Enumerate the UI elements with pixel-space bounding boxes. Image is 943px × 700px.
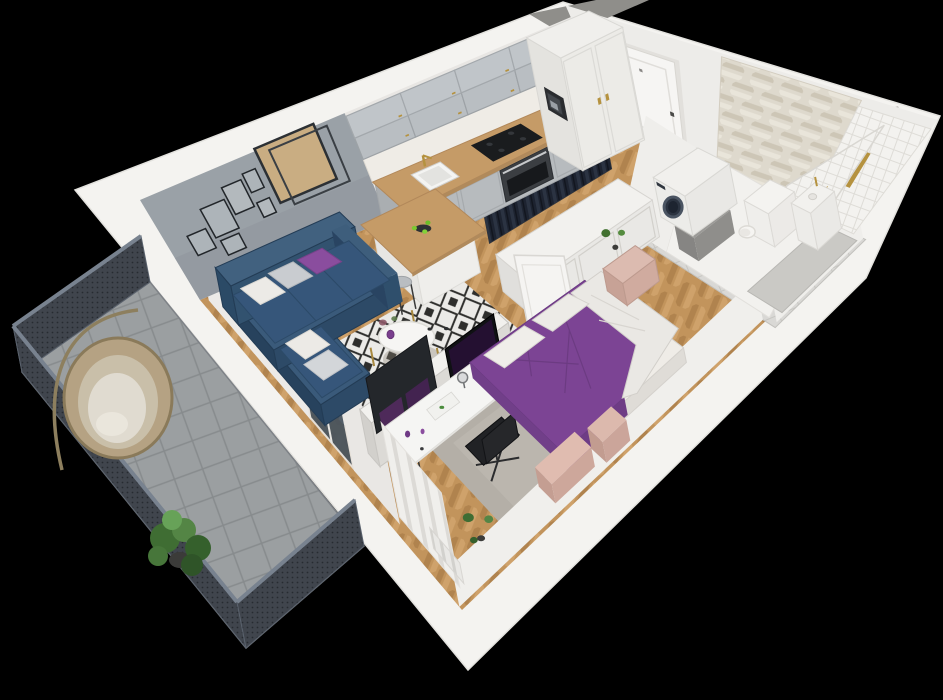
candle — [420, 447, 424, 450]
washer-drum — [668, 201, 678, 213]
cup — [427, 327, 431, 330]
plant — [601, 229, 610, 237]
hanging-chair-pillow — [96, 412, 128, 436]
toilet-seat — [739, 229, 750, 237]
desk-mirror — [458, 372, 468, 382]
apples — [422, 229, 427, 233]
balcony-plant — [162, 510, 182, 530]
cup — [444, 327, 448, 330]
vase — [387, 330, 394, 338]
desk-mirror-stand — [464, 383, 465, 389]
burner — [486, 143, 492, 146]
render-canvas — [0, 0, 943, 700]
burner — [498, 149, 504, 152]
magazine-art — [439, 406, 444, 409]
apples — [425, 220, 430, 224]
plant — [463, 513, 474, 522]
vase — [421, 429, 425, 435]
apples — [412, 226, 417, 230]
vase — [405, 431, 410, 438]
plant — [470, 537, 478, 543]
balcony-plant — [181, 554, 203, 576]
balcony-plant — [148, 546, 168, 566]
apartment-floorplan-render — [0, 0, 943, 700]
burner — [508, 132, 514, 135]
burner — [520, 137, 526, 140]
plant — [618, 230, 625, 236]
apartment-scene — [13, 0, 940, 670]
sink-basin — [809, 194, 817, 200]
flowers — [391, 316, 397, 321]
plant-pot — [477, 535, 485, 541]
flowers — [379, 320, 387, 326]
plant — [484, 515, 493, 523]
plant-pot — [612, 245, 618, 250]
